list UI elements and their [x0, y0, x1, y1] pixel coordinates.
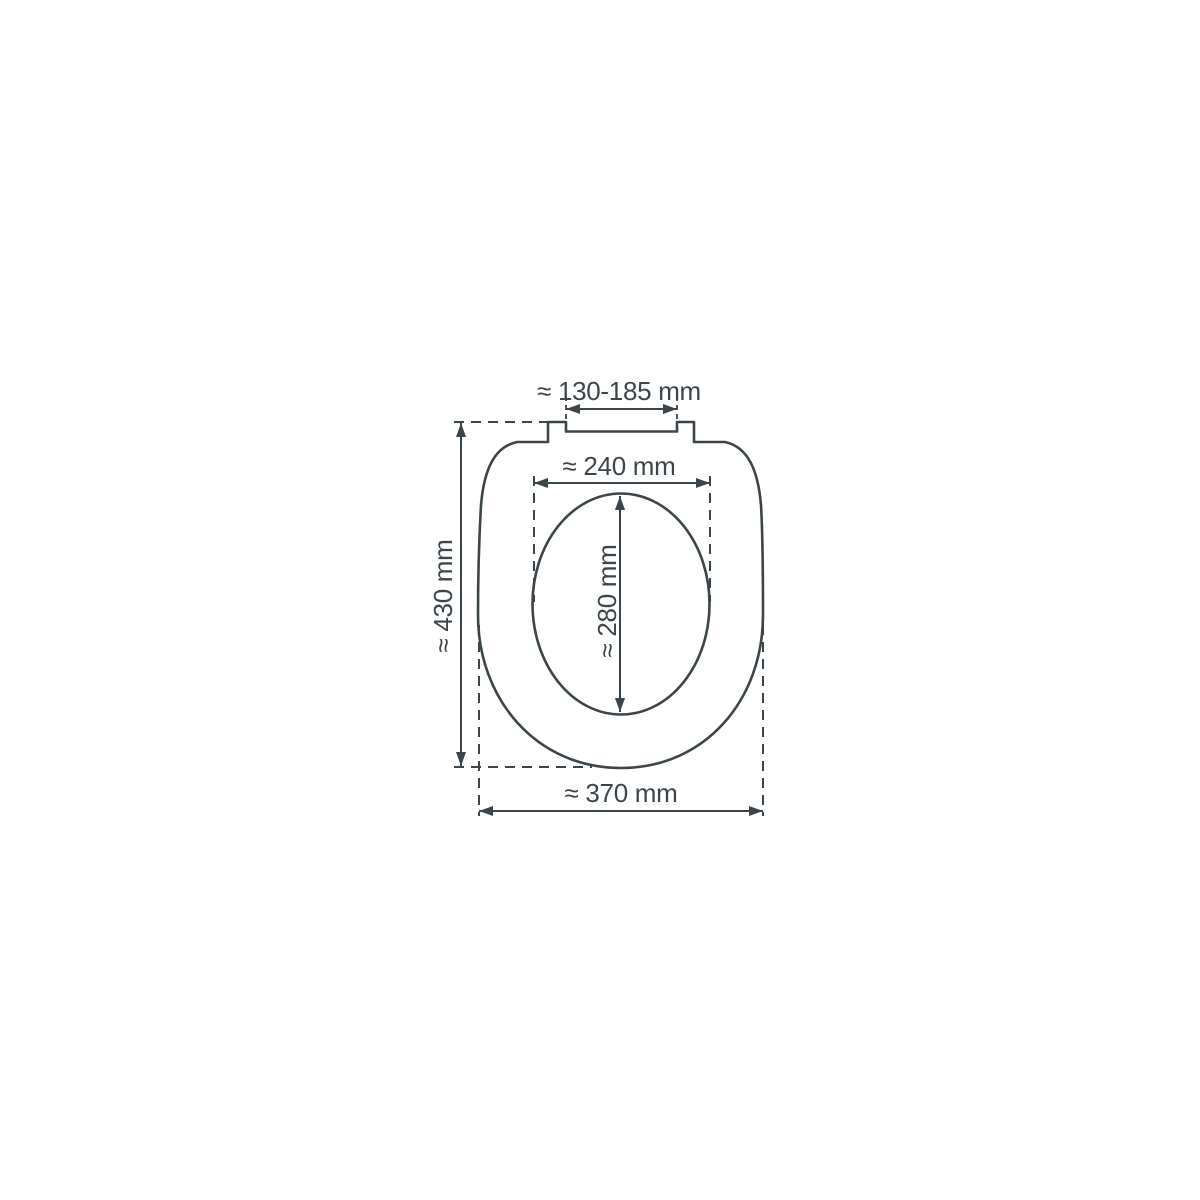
dimension-drawing-canvas: ≈ 130-185 mm ≈ 430 mm ≈ 240 mm ≈ 280 mm — [0, 0, 1200, 1200]
inner-width-label: ≈ 240 mm — [562, 451, 675, 481]
dimension-hinge-width: ≈ 130-185 mm — [537, 376, 701, 421]
overall-depth-label: ≈ 430 mm — [428, 539, 458, 652]
dimension-inner-depth: ≈ 280 mm — [592, 496, 622, 712]
toilet-seat-dimension-diagram: ≈ 130-185 mm ≈ 430 mm ≈ 240 mm ≈ 280 mm — [0, 0, 1200, 1200]
inner-depth-label: ≈ 280 mm — [592, 544, 622, 657]
hinge-width-label: ≈ 130-185 mm — [537, 376, 701, 406]
overall-width-label: ≈ 370 mm — [564, 778, 677, 808]
